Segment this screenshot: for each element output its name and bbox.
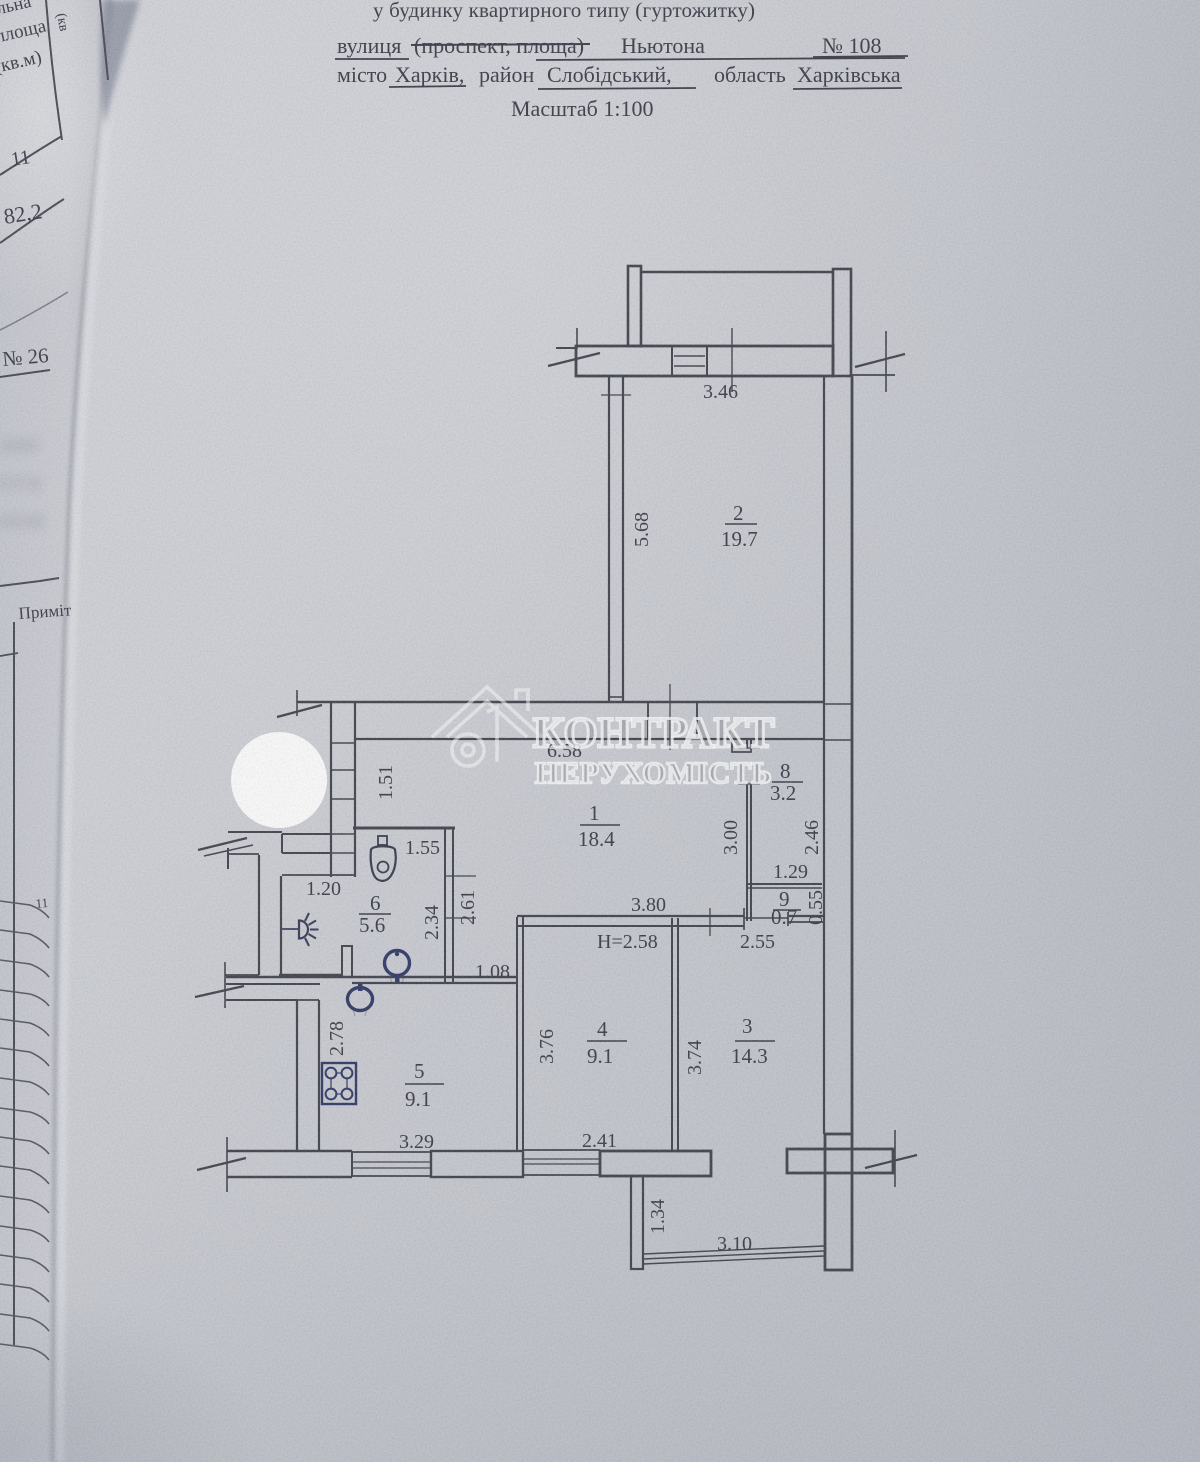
svg-text:1.34: 1.34 [647, 1199, 669, 1234]
svg-text:9.1: 9.1 [587, 1044, 613, 1068]
svg-text:0.55: 0.55 [805, 890, 827, 925]
svg-text:1.55: 1.55 [405, 837, 440, 859]
svg-text:8: 8 [780, 759, 791, 783]
svg-text:H=2.58: H=2.58 [597, 931, 658, 953]
svg-text:у будинку квартирного типу (гу: у будинку квартирного типу (гуртожитку) [373, 0, 755, 22]
svg-text:місто: місто [337, 62, 387, 87]
svg-text:5.68: 5.68 [631, 512, 653, 547]
svg-text:2.78: 2.78 [326, 1021, 348, 1056]
svg-text:№ 26: № 26 [1, 343, 49, 371]
svg-text:1.51: 1.51 [375, 765, 397, 800]
svg-text:2.61: 2.61 [457, 890, 479, 925]
svg-text:3.29: 3.29 [399, 1131, 434, 1153]
svg-text:4: 4 [597, 1017, 608, 1041]
svg-text:Приміт: Приміт [18, 600, 73, 623]
svg-text:11: 11 [9, 146, 31, 171]
svg-text:3.76: 3.76 [536, 1029, 558, 1064]
svg-text:6: 6 [370, 891, 381, 915]
svg-text:область: область [714, 62, 786, 87]
svg-text:ПОН: ПОН [0, 511, 45, 533]
svg-text:3.10: 3.10 [717, 1233, 752, 1255]
svg-text:3.74: 3.74 [684, 1040, 706, 1075]
svg-text:5: 5 [414, 1059, 425, 1083]
svg-text:2: 2 [733, 501, 744, 525]
svg-text:2.41: 2.41 [582, 1130, 617, 1152]
svg-text:Ньютона: Ньютона [621, 33, 705, 58]
svg-text:Харківська: Харківська [797, 62, 901, 87]
svg-text:Харків,: Харків, [395, 62, 464, 87]
svg-text:18.4: 18.4 [578, 827, 615, 851]
svg-text:Масштаб 1:100: Масштаб 1:100 [511, 96, 653, 121]
svg-text:1.29: 1.29 [773, 861, 808, 883]
svg-text:19.7: 19.7 [721, 527, 758, 551]
svg-text:5.6: 5.6 [359, 913, 385, 937]
svg-text:2.46: 2.46 [801, 820, 823, 855]
svg-text:1.20: 1.20 [306, 878, 341, 900]
svg-text:ІНН: ІНН [0, 435, 39, 457]
svg-text:Слобідський,: Слобідський, [547, 62, 672, 87]
svg-text:14.3: 14.3 [731, 1044, 768, 1068]
svg-text:1.08: 1.08 [475, 961, 510, 983]
svg-text:0.7: 0.7 [771, 905, 797, 929]
svg-text:3.46: 3.46 [703, 381, 738, 403]
svg-text:район: район [479, 62, 535, 87]
svg-text:вулиця: вулиця [337, 33, 401, 58]
svg-text:2.55: 2.55 [740, 931, 775, 953]
svg-text:КОНТРАКТ: КОНТРАКТ [533, 709, 775, 757]
svg-text:11: 11 [35, 895, 49, 911]
svg-text:ОТЗі: ОТЗі [0, 473, 41, 495]
svg-text:3.00: 3.00 [720, 820, 742, 855]
svg-text:2.34: 2.34 [421, 905, 443, 940]
svg-text:3: 3 [742, 1014, 753, 1038]
svg-text:3.2: 3.2 [770, 781, 796, 805]
svg-text:№ 108: № 108 [822, 33, 882, 58]
svg-text:1: 1 [589, 801, 600, 825]
svg-text:НЕРУХОМІСТЬ: НЕРУХОМІСТЬ [535, 756, 772, 790]
svg-text:9.1: 9.1 [405, 1087, 431, 1111]
svg-text:3.80: 3.80 [631, 894, 666, 916]
svg-text:(кв: (кв [53, 12, 71, 33]
